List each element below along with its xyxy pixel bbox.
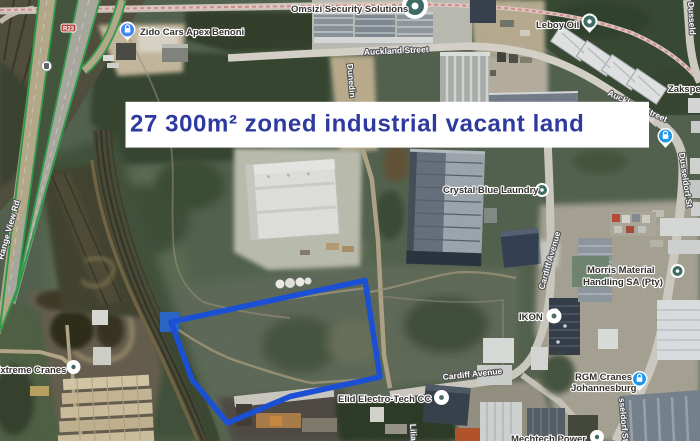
svg-text:Extreme Cranes: Extreme Cranes [0,365,66,376]
svg-text:Morris Material: Morris Material [587,265,655,276]
svg-text:Mechtech Power: Mechtech Power [511,434,586,441]
svg-text:Lilia: Lilia [408,424,419,441]
svg-text:Elid Electro-Tech CC: Elid Electro-Tech CC [338,394,431,405]
svg-text:RGM Cranes: RGM Cranes [575,372,632,383]
svg-text:Crystal Blue Laundry: Crystal Blue Laundry [443,185,539,196]
svg-text:Leboy Oil: Leboy Oil [536,20,579,31]
svg-text:27 300m² zoned industrial vaca: 27 300m² zoned industrial vacant land [130,111,584,138]
svg-text:Handling SA (Pty): Handling SA (Pty) [583,277,663,288]
svg-text:Dusseld: Dusseld [686,2,698,36]
svg-text:Zido Cars Apex Benoni: Zido Cars Apex Benoni [140,27,244,38]
svg-text:Zakspee: Zakspee [668,84,700,95]
svg-text:Omsizi Security Solutions: Omsizi Security Solutions [291,4,408,15]
svg-text:Johannesburg: Johannesburg [571,383,637,394]
svg-text:R23: R23 [63,27,75,33]
svg-text:IKON: IKON [519,312,543,323]
